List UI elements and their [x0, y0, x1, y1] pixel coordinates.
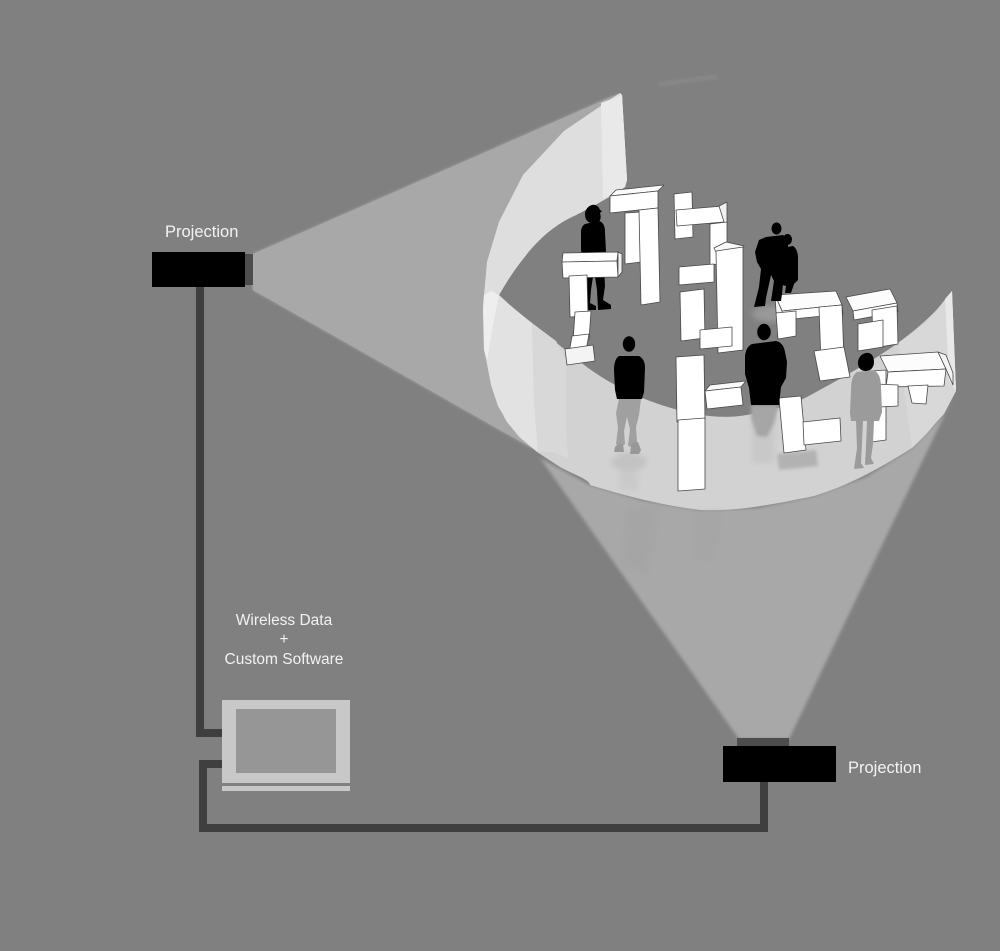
svg-text:Projection: Projection: [848, 759, 921, 777]
svg-text:Projection: Projection: [165, 223, 238, 241]
svg-text:Wireless Data: Wireless Data: [236, 612, 333, 629]
svg-text:Custom Software: Custom Software: [225, 651, 344, 668]
svg-text:+: +: [279, 631, 288, 648]
